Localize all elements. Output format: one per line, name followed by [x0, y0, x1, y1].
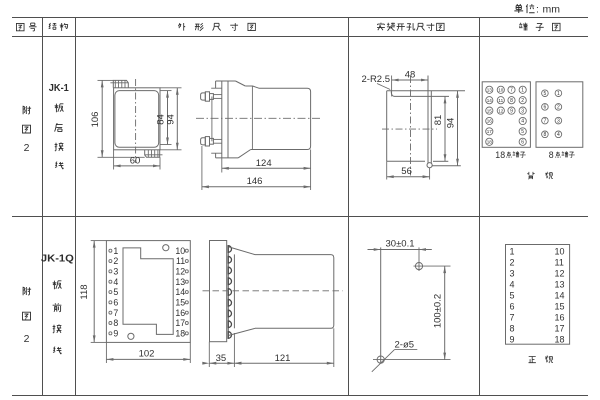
svg-text:15: 15 — [175, 297, 185, 307]
svg-text:5: 5 — [521, 129, 524, 135]
svg-text:102: 102 — [139, 349, 155, 360]
svg-text:3: 3 — [510, 268, 515, 278]
svg-text:JK-1Q: JK-1Q — [41, 253, 74, 265]
svg-text:2: 2 — [24, 333, 30, 345]
svg-text:81: 81 — [433, 115, 444, 126]
svg-text:14: 14 — [487, 98, 493, 103]
svg-text:1: 1 — [557, 91, 560, 97]
svg-text:9: 9 — [510, 334, 515, 344]
svg-text:17: 17 — [175, 318, 185, 328]
svg-text:7: 7 — [510, 312, 515, 322]
svg-text:4: 4 — [557, 132, 560, 138]
svg-text:2-ø5: 2-ø5 — [395, 339, 415, 350]
svg-text:11: 11 — [498, 98, 503, 103]
svg-text:5: 5 — [544, 91, 547, 97]
svg-text:100±0.2: 100±0.2 — [433, 294, 444, 328]
svg-text:30±0.1: 30±0.1 — [386, 239, 415, 250]
svg-text:10: 10 — [498, 88, 504, 93]
svg-text:13: 13 — [487, 88, 493, 93]
svg-text:2: 2 — [24, 142, 30, 154]
svg-text:12: 12 — [555, 268, 565, 278]
svg-text:17: 17 — [487, 129, 493, 134]
svg-text:2: 2 — [113, 256, 118, 266]
svg-text:16: 16 — [175, 308, 185, 318]
svg-text:4: 4 — [521, 119, 524, 125]
svg-text:94: 94 — [165, 114, 176, 125]
svg-text:10: 10 — [555, 246, 565, 256]
svg-text:2: 2 — [521, 98, 524, 104]
svg-text:3: 3 — [557, 118, 560, 124]
svg-text:4: 4 — [113, 277, 118, 287]
svg-text:48: 48 — [405, 70, 416, 81]
svg-text:18: 18 — [495, 150, 505, 160]
svg-text:2: 2 — [510, 257, 515, 267]
svg-text:2: 2 — [557, 105, 560, 111]
svg-text:8: 8 — [544, 132, 547, 138]
svg-text:15: 15 — [487, 108, 493, 113]
svg-text:12: 12 — [175, 266, 185, 276]
svg-text:14: 14 — [555, 290, 565, 300]
svg-text:12: 12 — [498, 108, 504, 113]
svg-text:121: 121 — [275, 353, 291, 364]
svg-text:3: 3 — [113, 266, 118, 276]
svg-text:11: 11 — [555, 257, 564, 267]
svg-text:1: 1 — [510, 246, 515, 256]
svg-text:8: 8 — [549, 150, 554, 160]
svg-text:11: 11 — [176, 256, 185, 266]
svg-text:8: 8 — [510, 323, 515, 333]
svg-text:JK-1: JK-1 — [49, 82, 69, 94]
svg-text:15: 15 — [555, 301, 565, 311]
svg-text:1: 1 — [521, 88, 524, 94]
svg-text:8: 8 — [510, 98, 513, 104]
svg-text:18: 18 — [175, 328, 185, 338]
svg-text:4: 4 — [510, 279, 515, 289]
svg-text:106: 106 — [90, 112, 101, 128]
svg-text:9: 9 — [113, 328, 118, 338]
svg-text:14: 14 — [175, 287, 185, 297]
svg-text:3: 3 — [521, 108, 524, 114]
svg-text:1: 1 — [113, 246, 118, 256]
svg-text:18: 18 — [487, 140, 493, 145]
svg-text:6: 6 — [521, 140, 524, 146]
svg-text:6: 6 — [544, 105, 547, 111]
svg-text:56: 56 — [401, 166, 412, 177]
svg-text:13: 13 — [175, 277, 185, 287]
svg-text:18: 18 — [555, 334, 565, 344]
svg-text:35: 35 — [216, 353, 227, 364]
svg-text:6: 6 — [510, 301, 515, 311]
svg-text:7: 7 — [544, 118, 547, 124]
svg-text:94: 94 — [445, 118, 456, 129]
svg-text:60: 60 — [130, 155, 141, 166]
svg-text:5: 5 — [510, 290, 515, 300]
svg-text:10: 10 — [175, 246, 185, 256]
svg-text:5: 5 — [113, 287, 118, 297]
svg-text:2-R2.5: 2-R2.5 — [362, 74, 391, 85]
svg-text::: : — [536, 4, 539, 16]
svg-text:mm: mm — [543, 4, 561, 16]
svg-text:6: 6 — [113, 297, 118, 307]
svg-text:17: 17 — [555, 323, 565, 333]
svg-text:16: 16 — [487, 119, 493, 124]
svg-text:8: 8 — [113, 318, 118, 328]
svg-text:124: 124 — [256, 158, 272, 169]
svg-text:118: 118 — [79, 284, 90, 299]
svg-text:146: 146 — [247, 176, 263, 187]
svg-text:9: 9 — [510, 108, 513, 114]
svg-text:16: 16 — [555, 312, 565, 322]
svg-text:13: 13 — [555, 279, 565, 289]
svg-text:7: 7 — [510, 88, 513, 94]
svg-text:7: 7 — [113, 308, 118, 318]
